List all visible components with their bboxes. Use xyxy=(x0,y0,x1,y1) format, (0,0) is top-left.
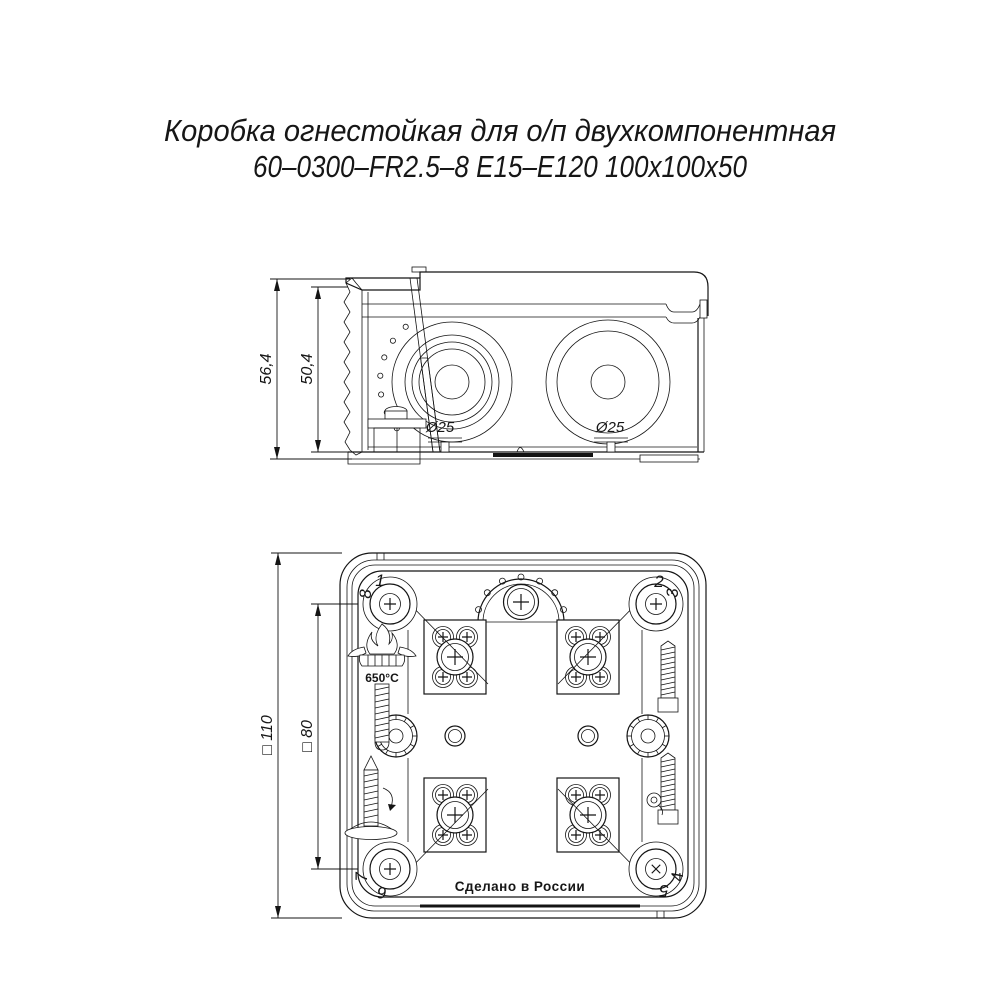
dim-label-50-4: 50,4 xyxy=(299,353,316,384)
seal-section xyxy=(344,278,362,455)
temperature-label: 650°C xyxy=(365,671,399,685)
box-side-outline xyxy=(344,267,708,464)
dome-screw xyxy=(504,585,539,620)
title-line-1: Коробка огнестойкая для о/п двухкомпонен… xyxy=(164,113,836,148)
dim-label-80: □ 80 xyxy=(299,720,316,752)
dim-label-56-4: 56,4 xyxy=(258,353,275,384)
bottom-view: □ 110 □ 80 xyxy=(259,553,706,918)
title-line-2: 60–0300–FR2.5–8 Е15–Е120 100x100x50 xyxy=(253,149,747,184)
terminal-block-bottom-left xyxy=(424,778,486,852)
corner-screw-top-left xyxy=(363,577,417,631)
technical-drawing: Коробка огнестойкая для о/п двухкомпонен… xyxy=(0,0,1000,1000)
corner-number-6: 6 xyxy=(377,883,387,902)
corner-number-4: 4 xyxy=(668,872,687,881)
terminal-block-top-left xyxy=(424,620,486,694)
corner-number-3: 3 xyxy=(663,588,682,598)
drawing-page: Коробка огнестойкая для о/п двухкомпонен… xyxy=(0,0,1000,1000)
knockout-right: Ø25 xyxy=(546,320,670,452)
threaded-stud-bottom xyxy=(658,753,678,824)
knockout-right-stand xyxy=(594,438,628,452)
adjust-wheel-right xyxy=(627,715,669,757)
corner-number-8: 8 xyxy=(356,589,375,599)
corner-number-1: 1 xyxy=(375,571,384,590)
screw-illustration-top xyxy=(375,684,389,750)
made-in-label: Сделано в России xyxy=(455,879,585,894)
knockout-left: Ø25 xyxy=(378,322,512,452)
dimension-height-inner: 50,4 xyxy=(299,287,350,452)
knockout-right-label: Ø25 xyxy=(595,419,625,436)
corner-number-2: 2 xyxy=(653,572,664,591)
corner-screw-bottom-left xyxy=(363,842,417,896)
corner-number-5: 5 xyxy=(659,881,669,900)
corner-number-7: 7 xyxy=(352,872,371,882)
side-view: 56,4 50,4 xyxy=(258,267,708,464)
threaded-stud-top xyxy=(658,641,678,712)
terminal-block-bottom-right xyxy=(557,778,619,852)
title-block: Коробка огнестойкая для о/п двухкомпонен… xyxy=(164,113,836,184)
dim-label-110: □ 110 xyxy=(259,715,276,755)
